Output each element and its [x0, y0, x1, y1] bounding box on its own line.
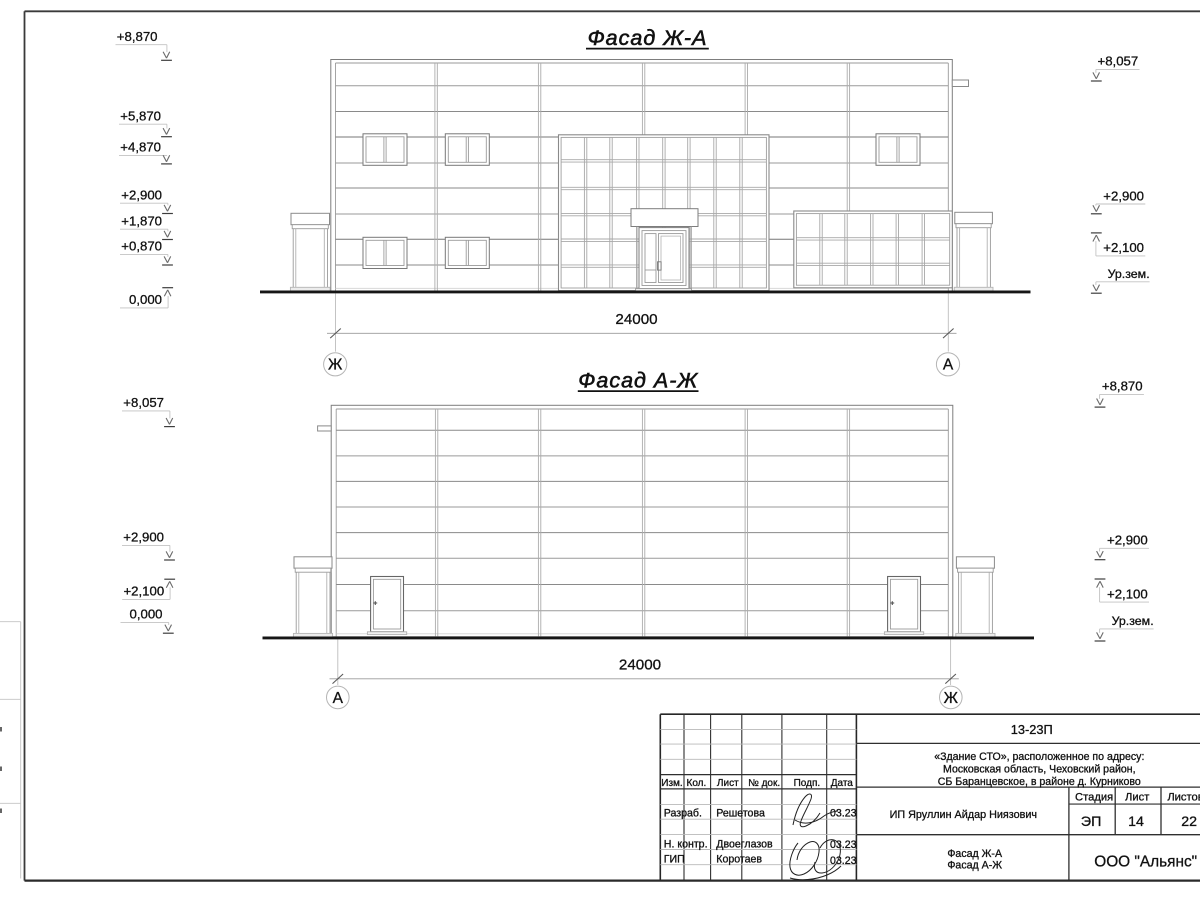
svg-text:Кол.: Кол. — [687, 778, 707, 789]
svg-text:24000: 24000 — [619, 657, 661, 674]
svg-text:Двоеглазов: Двоеглазов — [716, 838, 773, 850]
svg-text:+1,870: +1,870 — [121, 214, 162, 229]
svg-text:Московская область, Чеховский: Московская область, Чеховский район, — [943, 764, 1136, 776]
svg-text:+8,057: +8,057 — [1098, 54, 1139, 69]
svg-text:ЭП: ЭП — [1081, 814, 1101, 830]
svg-text:0,000: 0,000 — [129, 607, 162, 622]
svg-text:03.23: 03.23 — [830, 839, 857, 851]
svg-text:ГИП: ГИП — [664, 853, 685, 865]
svg-text:А: А — [943, 357, 954, 374]
svg-text:Коротаев: Коротаев — [716, 853, 762, 865]
svg-text:+2,900: +2,900 — [1107, 533, 1148, 548]
svg-text:Стадия: Стадия — [1075, 792, 1113, 804]
svg-text:03.23: 03.23 — [830, 855, 857, 867]
svg-text:Н. контр.: Н. контр. — [664, 839, 708, 851]
svg-text:«Здание СТО», расположенное по: «Здание СТО», расположенное по адресу: — [934, 751, 1144, 763]
svg-text:Лист: Лист — [1125, 792, 1149, 804]
svg-text:СБ Баранцевское, в районе д. К: СБ Баранцевское, в районе д. Курниково — [938, 776, 1141, 788]
svg-text:+2,900: +2,900 — [123, 530, 164, 545]
svg-text:+0,870: +0,870 — [121, 239, 162, 254]
svg-text:Фасад Ж-А: Фасад Ж-А — [947, 848, 1003, 860]
svg-text:+4,870: +4,870 — [120, 140, 161, 155]
svg-text:Ур.зем.: Ур.зем. — [1112, 614, 1154, 628]
svg-text:24000: 24000 — [615, 311, 657, 328]
svg-text:Фасад А-Ж: Фасад А-Ж — [947, 860, 1002, 872]
svg-text:14: 14 — [1128, 814, 1144, 830]
svg-text:+8,870: +8,870 — [117, 29, 158, 44]
svg-text:Листов: Листов — [1167, 792, 1200, 804]
svg-text:13-23П: 13-23П — [1011, 722, 1053, 737]
svg-text:Решетова: Решетова — [716, 808, 765, 820]
svg-text:Подп.: Подп. — [794, 778, 821, 789]
svg-text:№ док.: № док. — [748, 778, 780, 789]
svg-text:Ж: Ж — [328, 357, 343, 374]
svg-text:А: А — [333, 690, 344, 707]
svg-text:+2,100: +2,100 — [123, 584, 164, 599]
svg-text:+2,900: +2,900 — [121, 188, 162, 203]
svg-text:ООО "Альянс": ООО "Альянс" — [1094, 853, 1197, 870]
svg-text:Ур.зем.: Ур.зем. — [1108, 267, 1150, 281]
svg-text:Ж: Ж — [944, 690, 959, 707]
svg-text:Фасад А-Ж: Фасад А-Ж — [578, 369, 698, 393]
svg-text:Фасад Ж-А: Фасад Ж-А — [588, 26, 708, 50]
svg-text:22: 22 — [1181, 814, 1197, 830]
svg-text:+5,870: +5,870 — [120, 109, 161, 124]
svg-text:Дата: Дата — [831, 778, 854, 789]
svg-text:+2,100: +2,100 — [1107, 586, 1148, 601]
svg-text:+2,900: +2,900 — [1103, 188, 1144, 203]
svg-text:Изм.: Изм. — [661, 778, 682, 789]
svg-text:03.23: 03.23 — [830, 808, 857, 820]
svg-text:+2,100: +2,100 — [1103, 240, 1144, 255]
svg-text:Разраб.: Разраб. — [664, 807, 702, 819]
svg-text:+8,870: +8,870 — [1102, 379, 1143, 394]
svg-text:0,000: 0,000 — [129, 292, 162, 307]
svg-text:ИП Яруллин Айдар Ниязович: ИП Яруллин Айдар Ниязович — [890, 809, 1037, 821]
svg-text:+8,057: +8,057 — [123, 395, 164, 410]
svg-text:Лист: Лист — [717, 778, 739, 789]
